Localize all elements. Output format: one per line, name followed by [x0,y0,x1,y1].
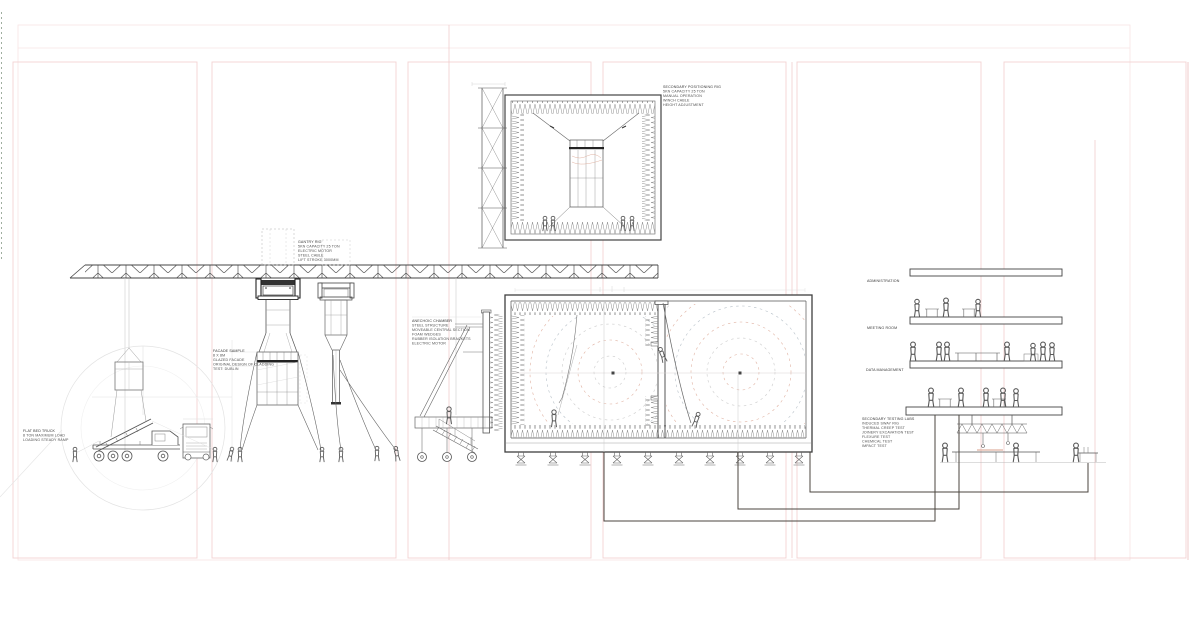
annotation-secondary-positioning-rig: SECONDARY POSITIONING RIG 5KN CAPACITY 2… [663,85,721,108]
person-figure [983,388,988,407]
positioning-tower [472,82,507,248]
label-data-management: DATA MANAGEMENT [866,368,904,373]
person-figure [1013,389,1018,407]
annotation-facade-sample: FACADE SAMPLE 8 X 8M GLAZED FACADE ORIGI… [213,349,274,372]
rig-crew [238,446,400,462]
foam-wedges [490,314,503,431]
truck-front-view [180,419,213,460]
administration-slab [910,317,1062,324]
person-figure [73,447,77,462]
microphone-marker [739,372,742,375]
label-administration: ADMINISTRATION [867,279,899,284]
architectural-drawing-sheet: FLAT BED TRUCK 8 TON MAXIMUM LOAD LOADIN… [0,0,1200,623]
data-management-slab [906,407,1062,415]
person-figure [1049,343,1054,361]
anechoic-chamber-section [505,242,871,502]
isolation-footings [516,452,805,465]
person-figure [958,388,963,407]
roof-slab [910,269,1062,276]
person-figure [1040,342,1045,361]
annotation-gantry-rig: GANTRY RIG 5KN CAPACITY 25 TON ELECTRIC … [298,240,340,263]
floor-wedges [511,425,806,438]
annotation-flat-bed-truck: FLAT BED TRUCK 8 TON MAXIMUM LOAD LOADIN… [23,429,69,443]
chamber-front-view [505,95,661,240]
person-figure [213,447,217,462]
guy-ropes [333,355,396,450]
flat-bed-truck [93,431,180,461]
ceiling-wedges [511,302,658,315]
building-section [906,269,1106,463]
person-figure [914,299,919,316]
person-figure [375,446,379,461]
person-figure [942,443,947,462]
person-figure [1004,342,1009,361]
tilted-facade-panel [96,419,153,451]
person-figure [1073,443,1078,462]
delivery-area [0,279,234,510]
label-meeting-room: MEETING ROOM [867,326,897,331]
person-figure [1030,343,1035,360]
annotation-secondary-testing-labs: SECONDARY TESTING LABS INDUCED SWAY RIG … [862,417,914,449]
person-figure [975,299,980,316]
microphone-marker [612,372,615,375]
annotation-anechoic-chamber: ANECHOIC CHAMBER STEEL STRUCTURE MOVEABL… [412,319,471,346]
person-figure [227,447,234,461]
access-stair [433,419,478,453]
person-figure [944,342,949,361]
drawing-linework [0,0,1200,623]
person-figure [320,447,324,462]
lab-bench [952,450,1040,462]
meeting-table [955,353,1000,361]
person-figure [943,298,948,317]
wall-wedges [512,315,525,425]
person-figure [928,388,933,407]
person-figure [1000,388,1005,407]
person-figure [936,342,941,361]
person-figure [910,342,915,361]
meeting-room-slab [910,361,1062,368]
